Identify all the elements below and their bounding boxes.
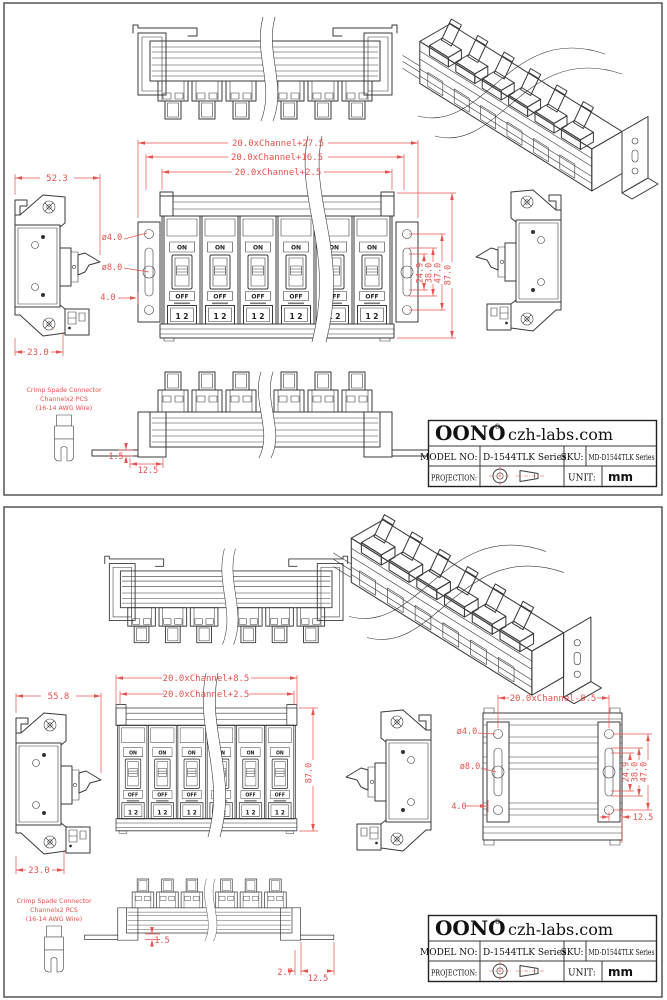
dim-hole-offset: 4.0 [451,802,466,812]
dim-rear-foot: 12.5 [633,813,653,823]
dim-width-outer: 20.0xChannel+8.5 [163,674,250,684]
drawing-sheet: ON OFF 1 2 [0,0,667,1000]
dim-plate-outer: 47.0 [434,263,444,283]
dim-hole-offset: 4.0 [100,293,115,303]
dim-plate-mid: 38.0 [631,762,641,782]
dim-foot-offset: 2.7 [277,968,292,978]
dim-foot-width: 12.5 [308,974,328,984]
dim-hole-big: ø8.0 [102,263,122,273]
dim-foot-thickness: 1.5 [108,452,123,462]
dim-plate-inner: 24.9 [622,762,632,782]
dim-hole-big: ø8.0 [460,762,480,772]
dim-side-width: 52.3 [46,174,68,184]
panel-top: 20.0xChannel+27.5 20.0xChannel+16.5 20.0… [0,0,667,500]
dim-width-brackets: 20.0xChannel+16.5 [231,153,323,163]
dim-side-foot: 23.0 [27,348,49,358]
dim-hole-small: ø4.0 [102,233,122,243]
dim-height-overall: 87.0 [444,265,454,285]
dim-hole-small: ø4.0 [457,727,477,737]
dim-plate-inner: 24.9 [416,263,426,283]
dim-foot-thickness: 1.5 [154,936,169,946]
dim-side-width: 55.8 [48,692,70,702]
dim-width-body: 20.0xChannel+2.5 [163,690,250,700]
dim-foot-width: 12.5 [138,466,158,476]
panel-bottom: 20.0xChannel+8.5 20.0xChannel+2.5 87.0 5… [0,505,667,1000]
dim-plate-mid: 38.0 [425,263,435,283]
dim-width-body: 20.0xChannel+2.5 [235,168,322,178]
dim-rear-width: 20.0xChannel-8.5 [510,694,597,704]
title-block [420,916,657,983]
title-block [420,421,657,488]
dim-side-foot: 23.0 [28,866,50,876]
dim-width-overall: 20.0xChannel+27.5 [232,139,324,149]
dim-plate-outer: 47.0 [640,762,650,782]
dim-height-overall: 87.0 [305,763,315,783]
